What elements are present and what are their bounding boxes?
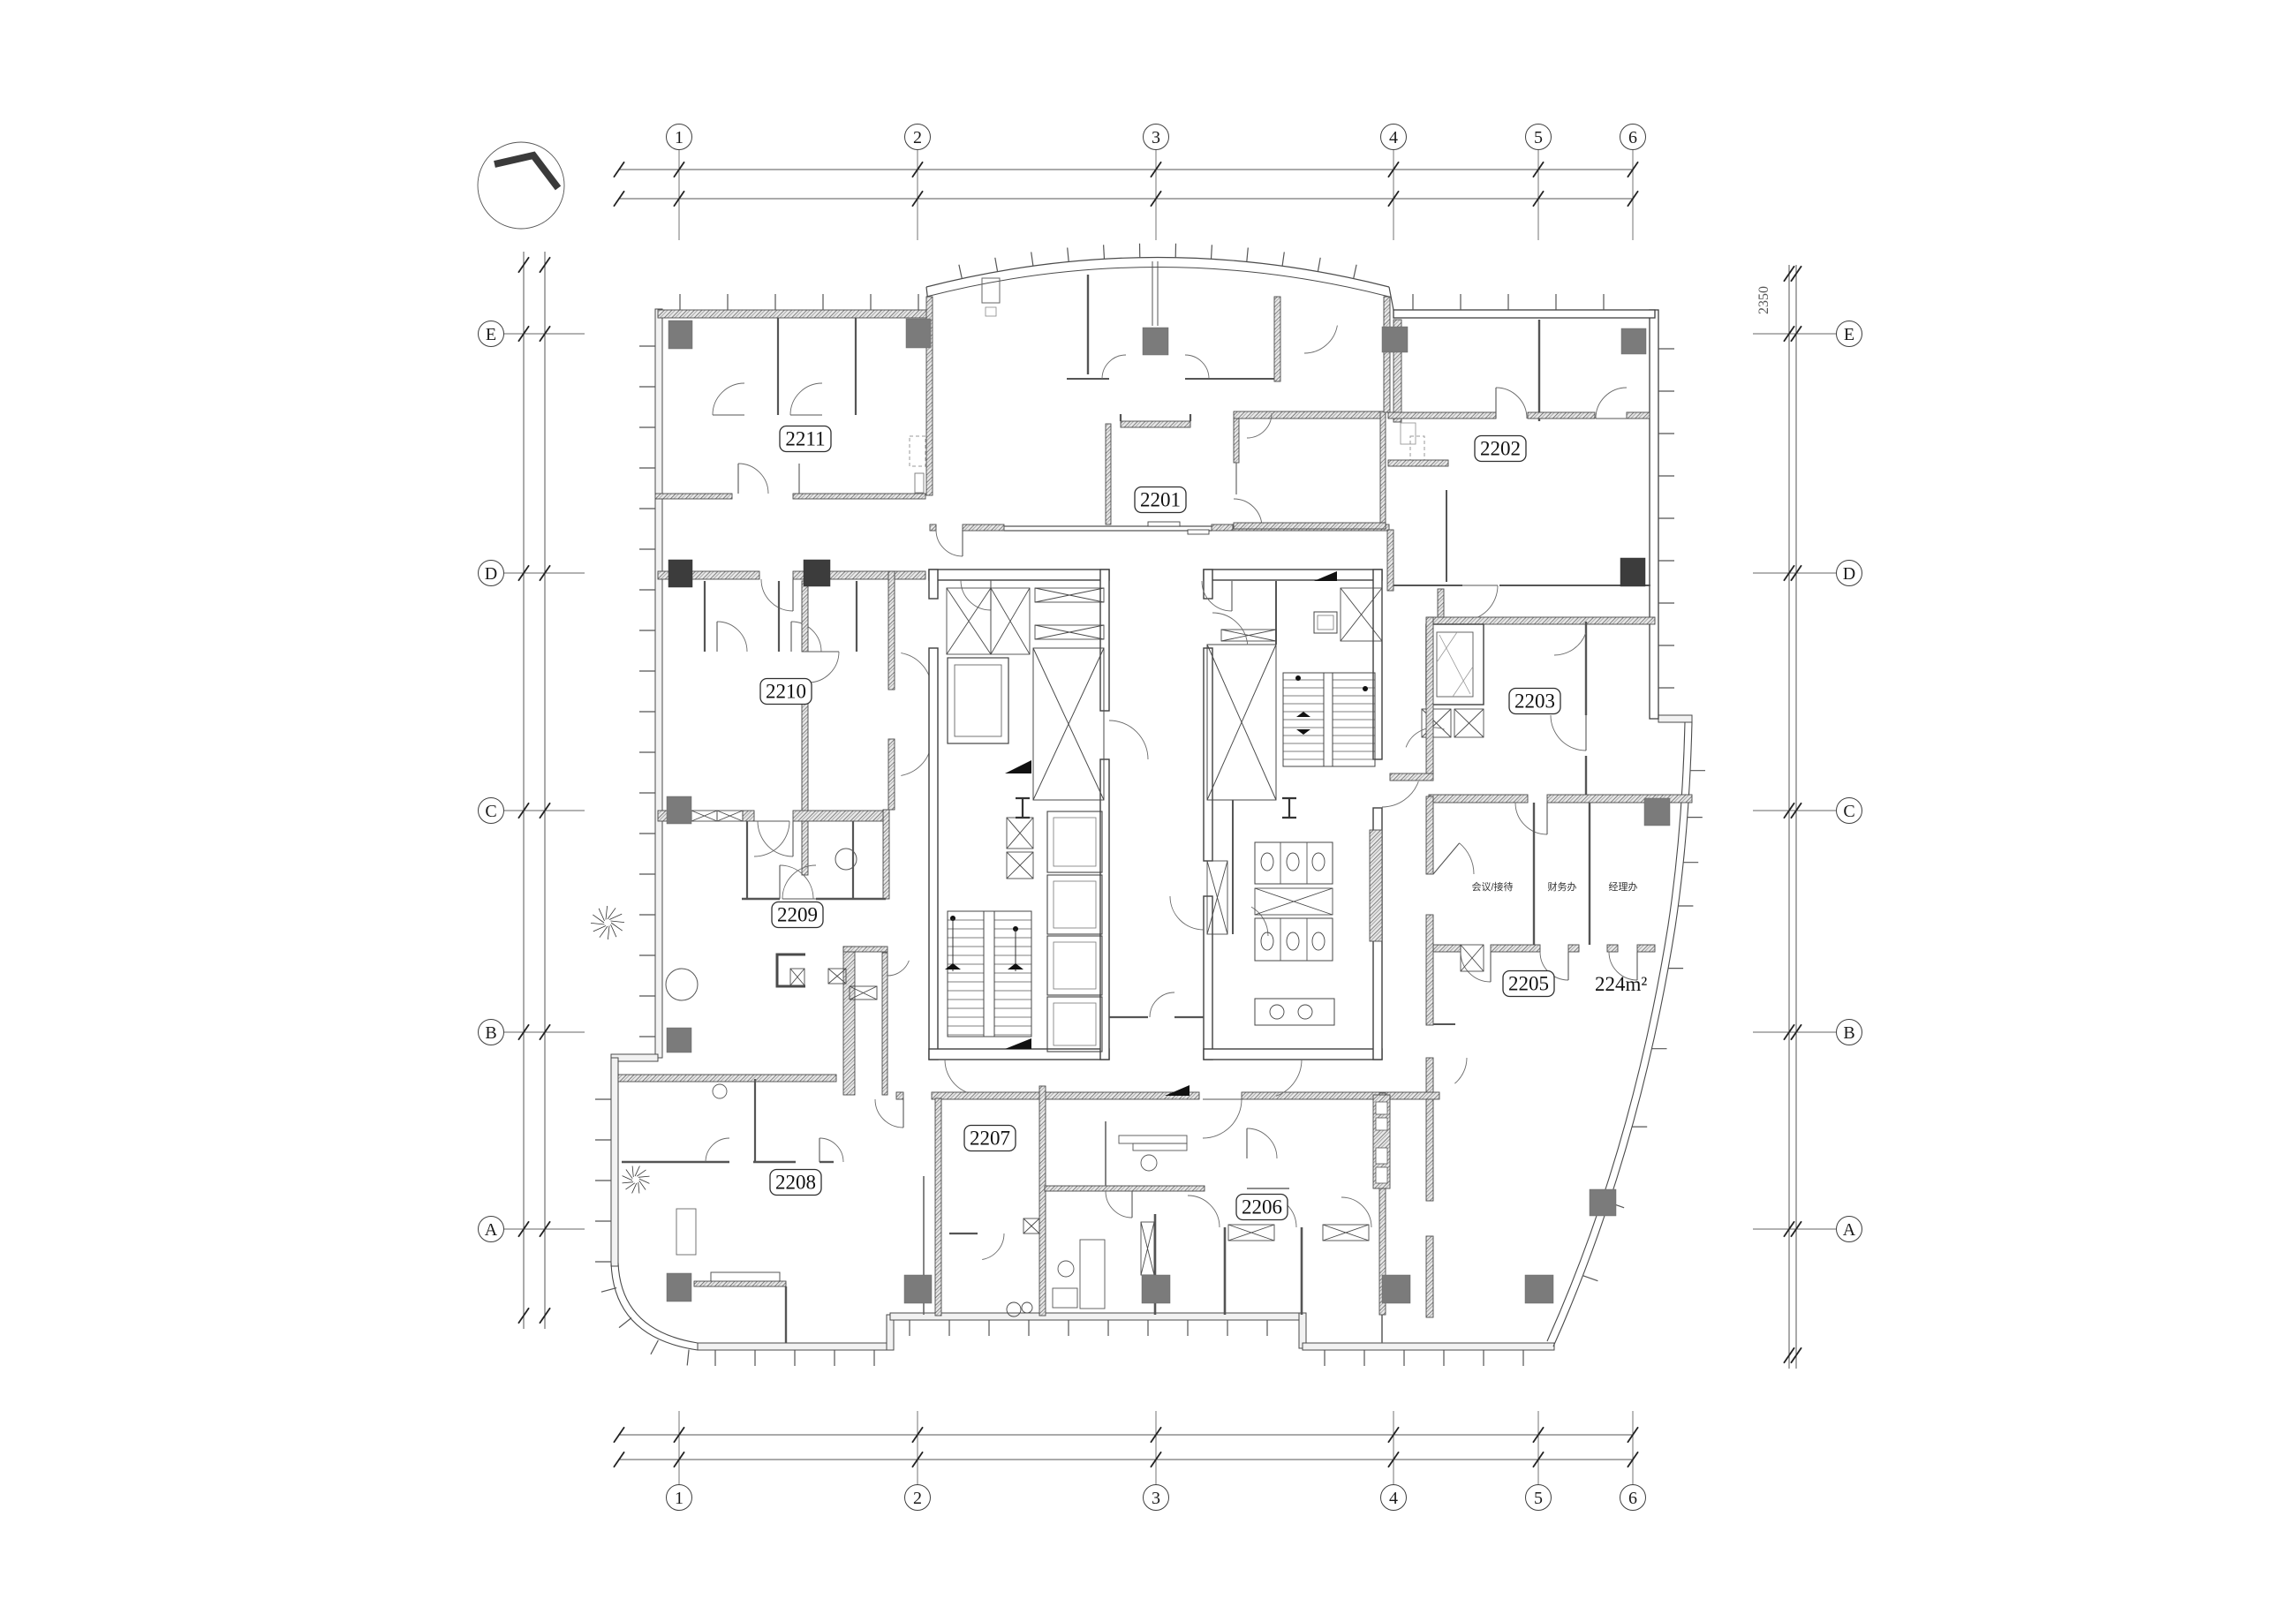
svg-text:D: D bbox=[485, 564, 497, 584]
svg-text:2206: 2206 bbox=[1242, 1196, 1282, 1218]
svg-text:6: 6 bbox=[1628, 128, 1637, 147]
svg-text:1: 1 bbox=[675, 1489, 684, 1508]
svg-text:224m²: 224m² bbox=[1595, 973, 1647, 995]
svg-text:2: 2 bbox=[913, 1489, 922, 1508]
svg-text:D: D bbox=[1843, 564, 1855, 584]
svg-text:2350: 2350 bbox=[1756, 286, 1771, 314]
svg-text:2207: 2207 bbox=[970, 1128, 1010, 1150]
svg-text:3: 3 bbox=[1152, 1489, 1160, 1508]
svg-text:2205: 2205 bbox=[1508, 973, 1549, 995]
svg-text:经理办: 经理办 bbox=[1609, 881, 1638, 893]
svg-text:1: 1 bbox=[675, 128, 684, 147]
svg-text:2202: 2202 bbox=[1480, 438, 1521, 460]
svg-text:A: A bbox=[485, 1220, 498, 1240]
svg-text:4: 4 bbox=[1389, 128, 1398, 147]
svg-text:5: 5 bbox=[1534, 1489, 1543, 1508]
svg-text:4: 4 bbox=[1389, 1489, 1398, 1508]
svg-text:2211: 2211 bbox=[785, 428, 825, 450]
svg-text:E: E bbox=[1844, 325, 1854, 344]
svg-text:6: 6 bbox=[1628, 1489, 1637, 1508]
svg-text:2203: 2203 bbox=[1514, 690, 1555, 713]
svg-text:会议/接待: 会议/接待 bbox=[1471, 880, 1513, 893]
svg-text:C: C bbox=[485, 802, 496, 821]
svg-text:B: B bbox=[1843, 1023, 1854, 1043]
svg-text:2210: 2210 bbox=[766, 681, 806, 703]
svg-text:2209: 2209 bbox=[777, 904, 818, 926]
svg-text:3: 3 bbox=[1152, 128, 1160, 147]
svg-text:2201: 2201 bbox=[1140, 489, 1181, 511]
svg-text:E: E bbox=[486, 325, 496, 344]
svg-text:5: 5 bbox=[1534, 128, 1543, 147]
svg-text:A: A bbox=[1843, 1220, 1856, 1240]
svg-text:2: 2 bbox=[913, 128, 922, 147]
svg-text:财务办: 财务办 bbox=[1548, 880, 1577, 893]
svg-text:2208: 2208 bbox=[775, 1172, 816, 1194]
svg-text:B: B bbox=[485, 1023, 496, 1043]
svg-text:C: C bbox=[1843, 802, 1854, 821]
